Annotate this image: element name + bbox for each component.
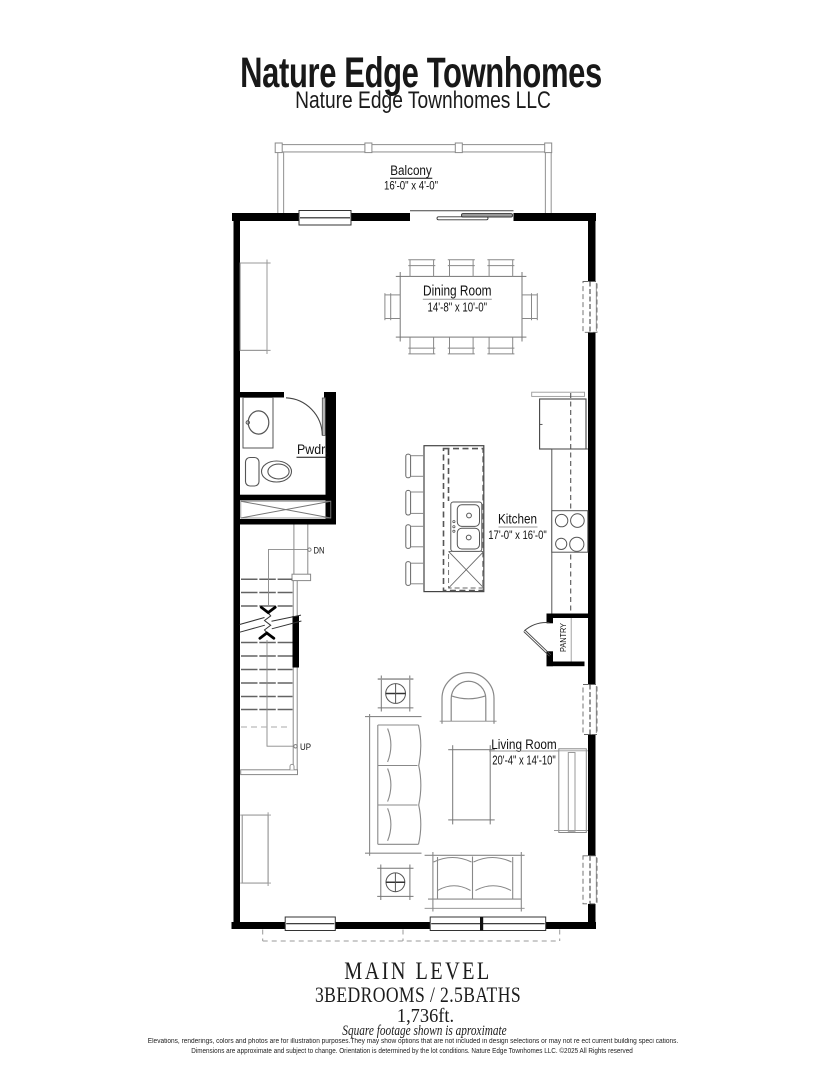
svg-text:Dining Room: Dining Room <box>423 284 492 300</box>
svg-text:16'-0" x 4'-0": 16'-0" x 4'-0" <box>384 179 438 193</box>
svg-text:DN: DN <box>314 546 325 556</box>
svg-text:20'-4" x 14'-10": 20'-4" x 14'-10" <box>492 752 556 767</box>
svg-text:14'-8" x 10'-0": 14'-8" x 10'-0" <box>428 300 488 315</box>
svg-text:Balcony: Balcony <box>390 163 432 178</box>
svg-text:PANTRY: PANTRY <box>558 623 568 652</box>
svg-text:17'-0" x 16'-0": 17'-0" x 16'-0" <box>488 528 547 542</box>
svg-text:Living Room: Living Room <box>491 736 557 752</box>
svg-text:Pwdr.: Pwdr. <box>297 442 328 457</box>
svg-text:UP: UP <box>300 742 311 752</box>
svg-text:Kitchen: Kitchen <box>498 512 537 527</box>
